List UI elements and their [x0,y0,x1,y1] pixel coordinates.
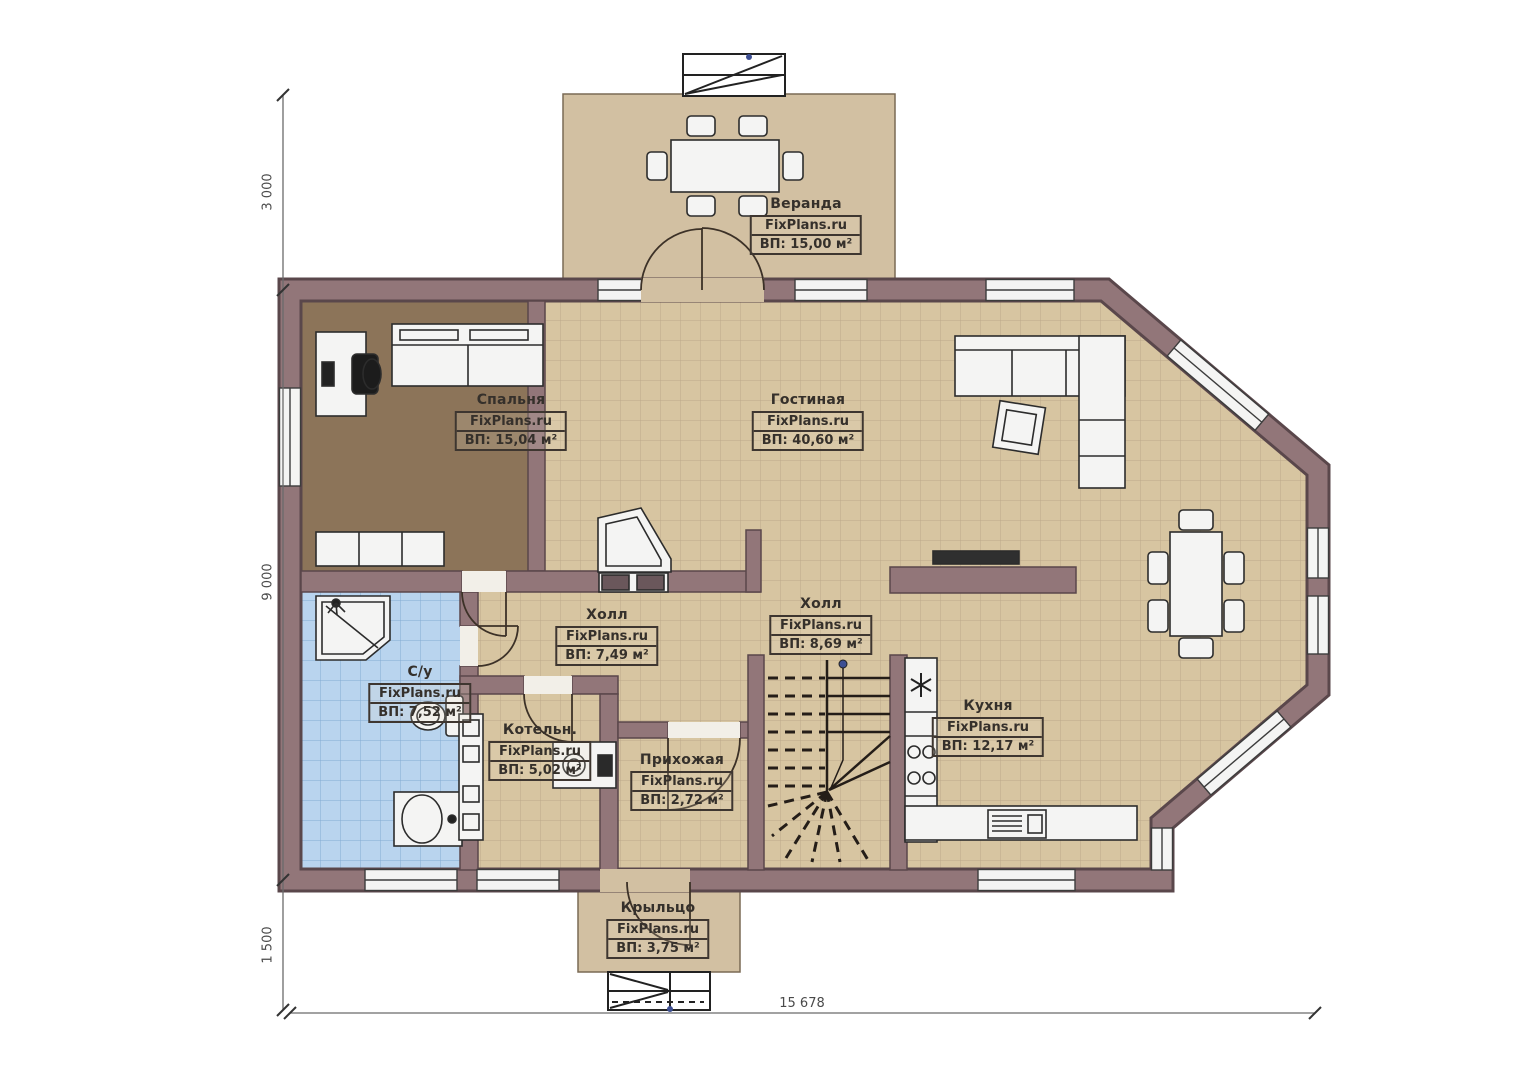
wall-bedroom-bottom [301,571,462,592]
room-info-box: FixPlans.ru ВП: 5,02 м² [488,741,591,781]
room-name: Прихожая [630,752,733,768]
veranda-steps [683,54,785,96]
room-label-entrance-hall: Прихожая FixPlans.ru ВП: 2,72 м² [630,752,733,811]
room-info-box: FixPlans.ru ВП: 8,69 м² [769,615,872,655]
dimension-left-middle: 9 000 [261,563,276,600]
window [986,280,1074,301]
towel-radiator [459,714,483,840]
room-area: ВП: 15,04 м² [457,430,565,449]
wall-stub-living [746,530,761,592]
room-area: ВП: 5,02 м² [490,760,589,779]
tv-console [933,551,1019,564]
room-area: ВП: 2,72 м² [632,790,731,809]
bathroom-door-opening [460,626,478,666]
room-brand: FixPlans.ru [754,413,862,430]
room-area: ВП: 3,75 м² [608,938,707,957]
room-name: Спальня [455,392,567,408]
room-area: ВП: 12,17 м² [934,736,1042,755]
dimension-bottom-total: 15 678 [779,996,825,1011]
room-label-porch: Крыльцо FixPlans.ru ВП: 3,75 м² [606,900,709,959]
window [1152,828,1173,870]
room-name: Гостиная [752,392,864,408]
room-name: Котельн. [488,722,591,738]
veranda-area [563,54,895,292]
room-info-box: FixPlans.ru ВП: 7,49 м² [555,626,658,666]
room-brand: FixPlans.ru [934,719,1042,736]
room-brand: FixPlans.ru [490,743,589,760]
room-info-box: FixPlans.ru ВП: 12,17 м² [932,717,1044,757]
room-brand: FixPlans.ru [557,628,656,645]
room-brand: FixPlans.ru [632,773,731,790]
wall-entry-top-left [618,722,668,738]
kitchen-bar-counter [890,567,1076,593]
window [365,870,457,891]
room-name: Кухня [932,698,1044,714]
porch-steps [608,972,710,1012]
room-info-box: FixPlans.ru ВП: 2,72 м² [630,771,733,811]
room-brand: FixPlans.ru [752,217,860,234]
bedroom-door-opening [462,571,506,592]
room-label-kitchen: Кухня FixPlans.ru ВП: 12,17 м² [932,698,1044,757]
sink [394,792,462,846]
room-name: Холл [769,596,872,612]
entry-door-opening [668,722,740,738]
wall-boiler-top-right [572,676,618,694]
room-brand: FixPlans.ru [608,921,707,938]
armchair [993,401,1046,455]
room-label-boiler-room: Котельн. FixPlans.ru ВП: 5,02 м² [488,722,591,781]
room-name: С/у [368,664,471,680]
room-label-living-room: Гостиная FixPlans.ru ВП: 40,60 м² [752,392,864,451]
room-label-bedroom: Спальня FixPlans.ru ВП: 15,04 м² [455,392,567,451]
dresser [316,532,444,566]
floor-plan-drawing [0,0,1528,1080]
room-label-hall-big: Холл FixPlans.ru ВП: 8,69 м² [769,596,872,655]
boiler-door-opening [524,676,572,694]
room-area: ВП: 7,49 м² [557,645,656,664]
room-info-box: FixPlans.ru ВП: 15,04 м² [455,411,567,451]
room-label-veranda: Веранда FixPlans.ru ВП: 15,00 м² [750,196,862,255]
dimension-left-bottom: 1 500 [261,926,276,963]
room-label-bathroom: С/у FixPlans.ru ВП: 7,52 м² [368,664,471,723]
room-label-hall-small: Холл FixPlans.ru ВП: 7,49 м² [555,607,658,666]
porch-door-opening [600,869,690,892]
room-brand: FixPlans.ru [457,413,565,430]
room-info-box: FixPlans.ru ВП: 7,52 м² [368,683,471,723]
room-info-box: FixPlans.ru ВП: 3,75 м² [606,919,709,959]
floor-plan-page: Веранда FixPlans.ru ВП: 15,00 м² Спальня… [0,0,1528,1080]
wardrobe [392,324,543,386]
room-area: ВП: 7,52 м² [370,702,469,721]
window [1308,596,1329,654]
room-info-box: FixPlans.ru ВП: 40,60 м² [752,411,864,451]
window [795,280,867,301]
dimension-left-top: 3 000 [261,173,276,210]
room-area: ВП: 15,00 м² [752,234,860,253]
window [477,870,559,891]
room-area: ВП: 40,60 м² [754,430,862,449]
room-info-box: FixPlans.ru ВП: 15,00 м² [750,215,862,255]
window [978,870,1075,891]
room-brand: FixPlans.ru [370,685,469,702]
office-chair [352,354,381,394]
room-area: ВП: 8,69 м² [771,634,870,653]
wall-stairs-left [748,655,764,870]
window [1308,528,1329,578]
room-name: Крыльцо [606,900,709,916]
room-name: Веранда [750,196,862,212]
room-name: Холл [555,607,658,623]
room-brand: FixPlans.ru [771,617,870,634]
dishwasher [988,810,1046,838]
